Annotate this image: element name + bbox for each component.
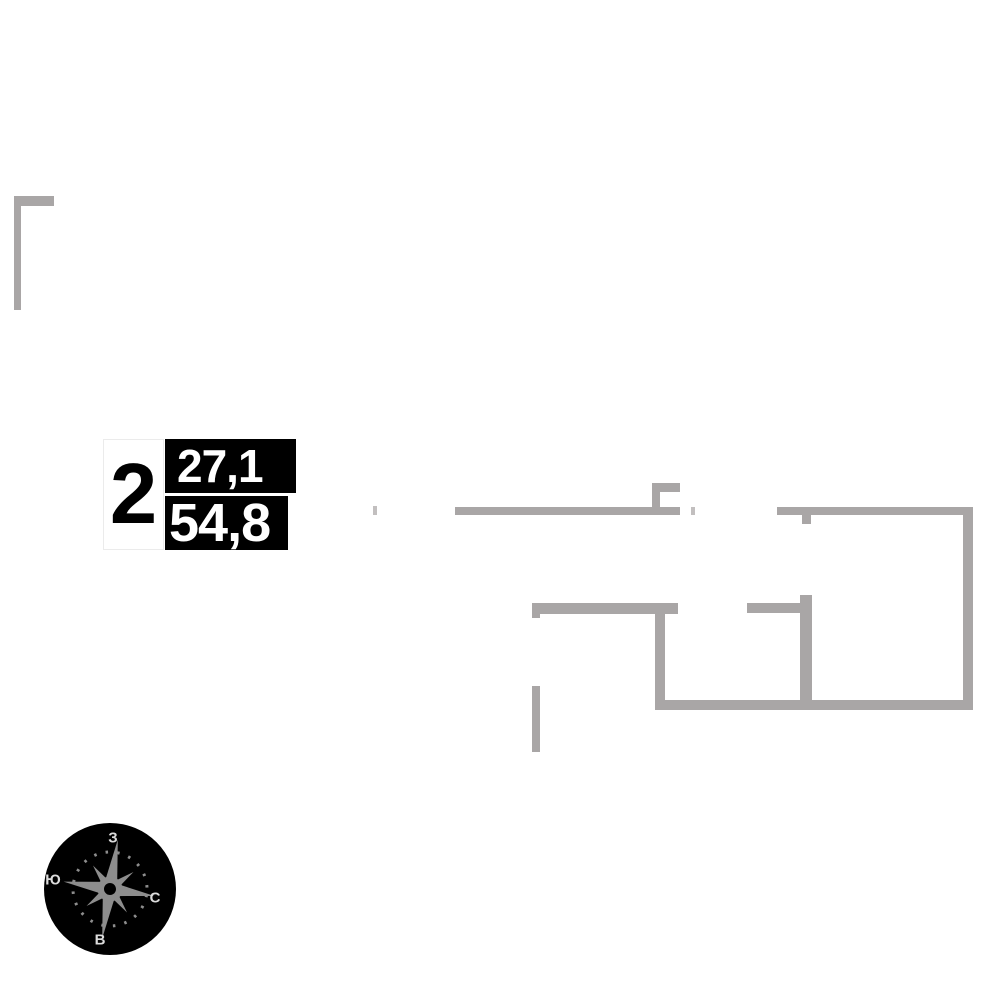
entry-wall-vertical [14,196,21,310]
partition-thin [532,686,540,752]
unit-areas: 27,1 54,8 [165,439,296,550]
bottom-wall [655,700,973,710]
top-wall-notch-horizontal [652,483,680,492]
door-jamb-tab [802,515,811,524]
compass-letter-north: С [150,891,161,906]
inner-wall-stub-right [747,603,800,613]
inner-wall-end-lip [532,614,540,618]
compass-letter-south: Ю [45,873,60,888]
compass-rose: З Ю С В [44,823,176,955]
top-wall-right [777,507,973,515]
compass-letter-east: В [95,933,106,948]
window-pier-far-left [373,506,377,515]
right-wall [963,507,973,710]
unit-total-area: 54,8 [165,496,288,550]
top-wall-main [455,507,680,515]
window-pier-mid [691,507,695,515]
inner-wall-vertical-left [655,612,665,710]
inner-wall-vertical-right [800,595,812,710]
unit-rooms-count: 2 [103,439,164,550]
floorplan-canvas: 2 27,1 54,8 [0,0,1000,1000]
compass-letter-west: З [108,831,117,846]
unit-info-card[interactable]: 2 27,1 54,8 [103,439,296,550]
unit-living-area: 27,1 [165,439,296,493]
